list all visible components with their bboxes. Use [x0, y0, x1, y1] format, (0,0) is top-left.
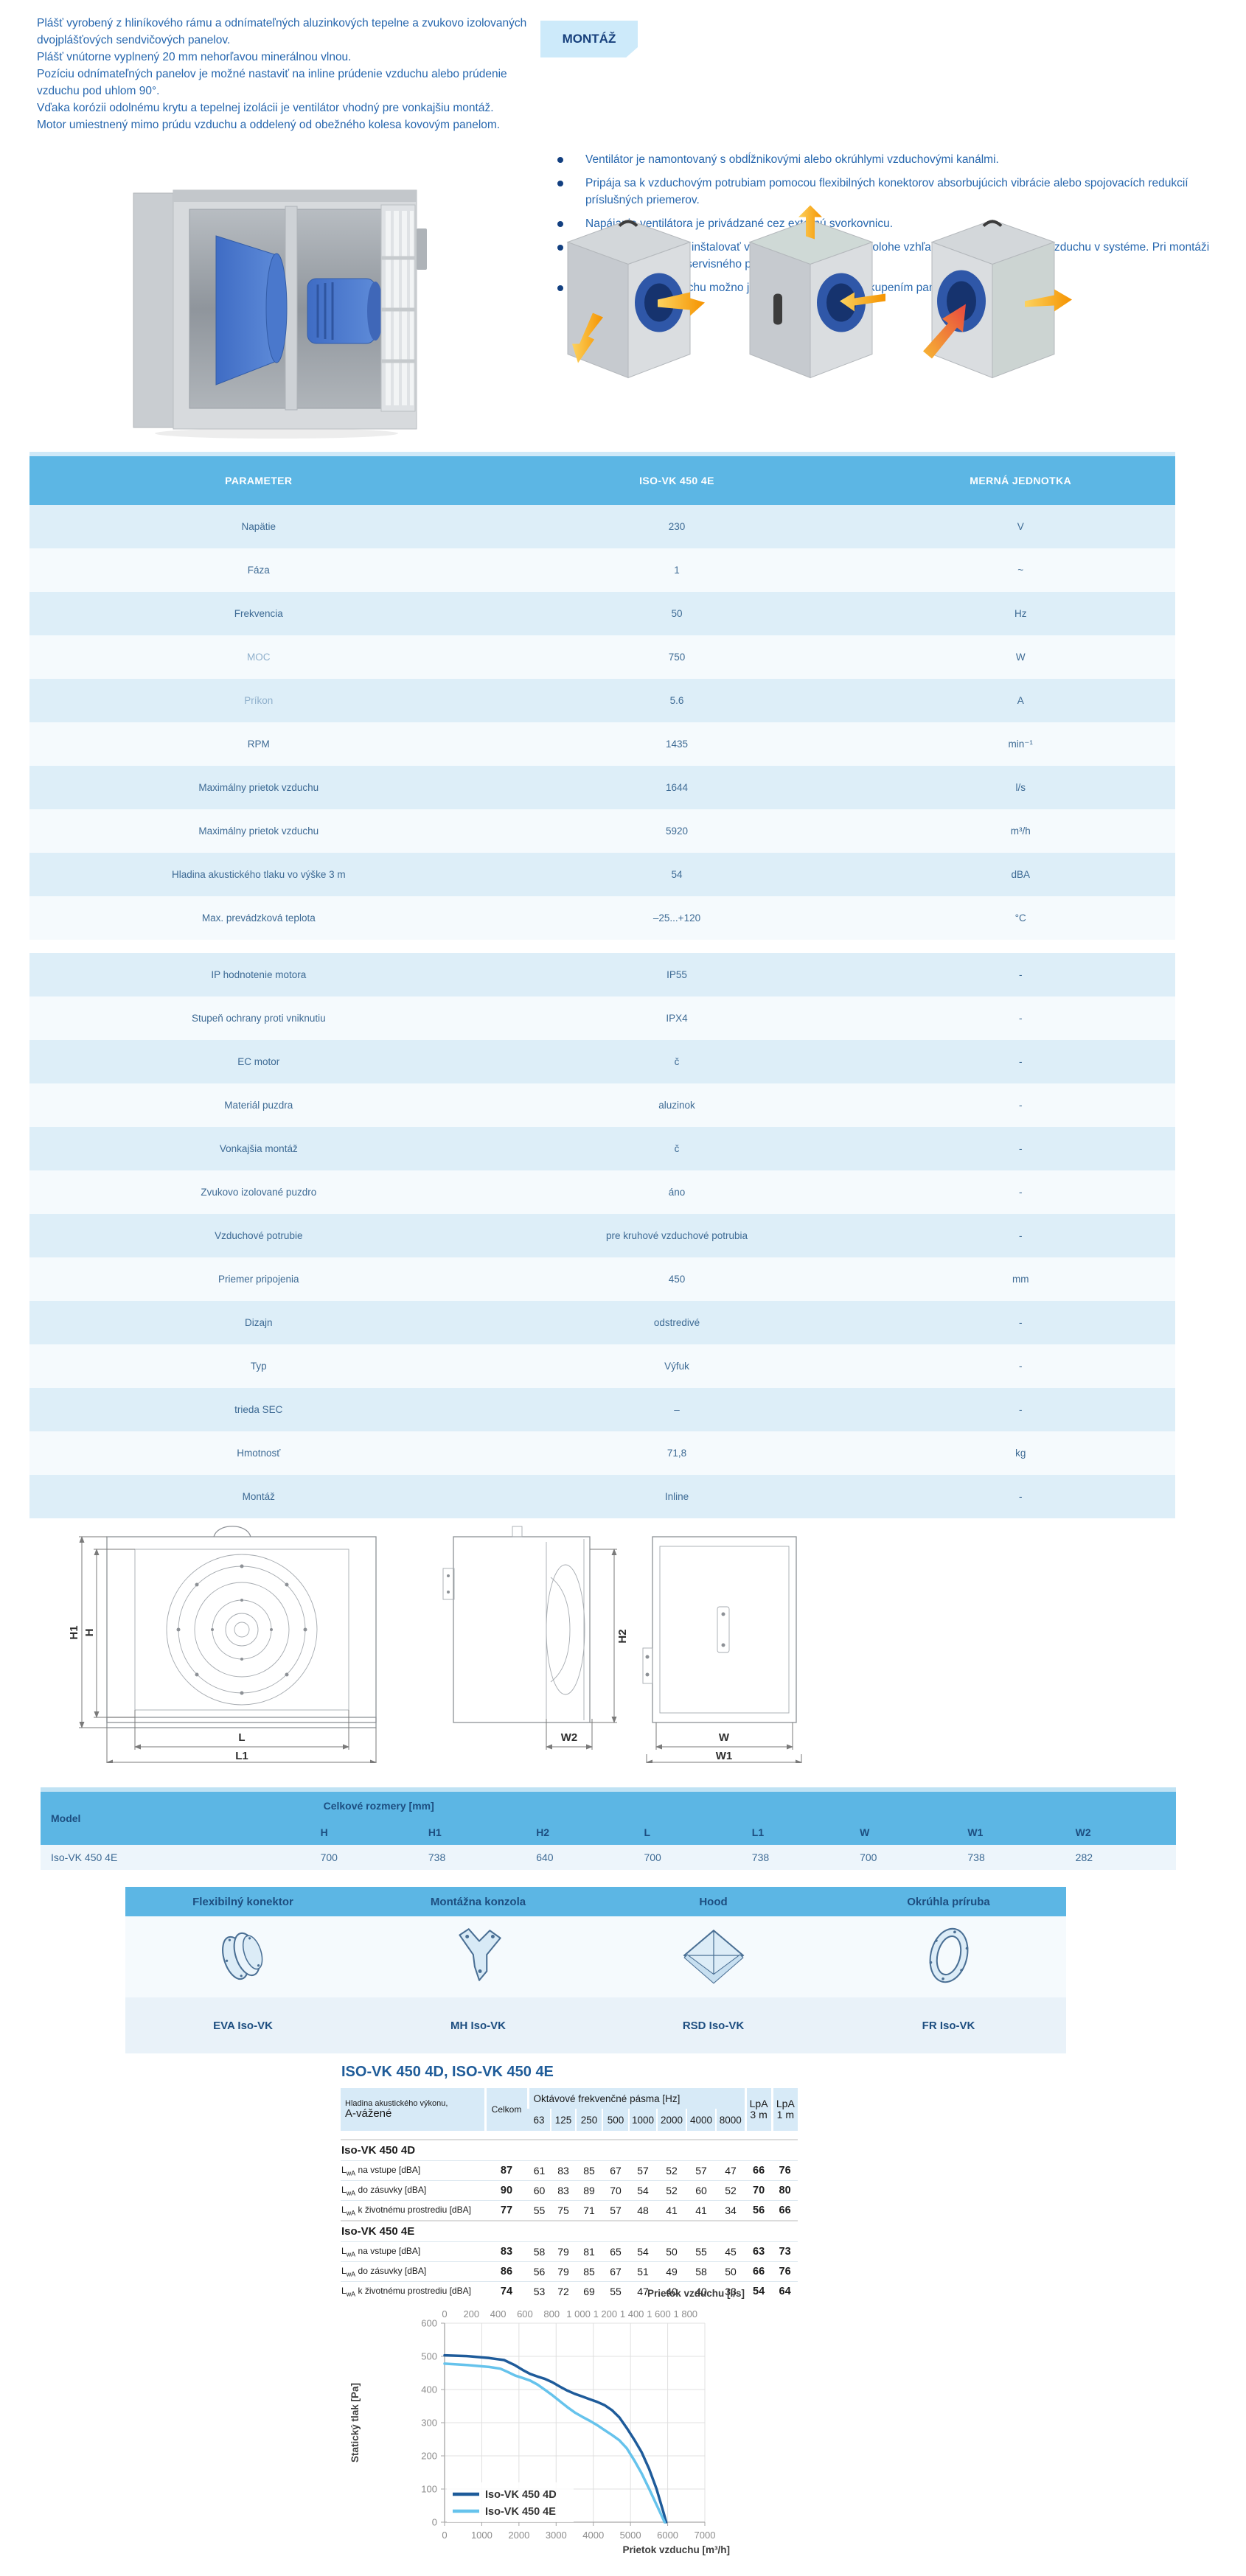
shadow [155, 428, 398, 439]
spec-unit: A [866, 679, 1175, 722]
dims-group-header-row: Model Celkové rozmery [mm] [41, 1790, 1176, 1820]
acoustic-band-value: 57 [686, 2161, 716, 2181]
top-tick-label: 1 400 [620, 2308, 644, 2320]
acoustic-band-value: 41 [686, 2201, 716, 2221]
spec-value: pre kruhové vzduchové potrubia [488, 1214, 866, 1257]
spec-param: Hmotnosť [29, 1431, 488, 1475]
spec-row: Priemer pripojenia450mm [29, 1257, 1175, 1301]
page-break-gap-cell [29, 940, 1175, 953]
acoustic-header-row-1: Hladina akustického výkonu, A-vážené Cel… [341, 2088, 798, 2109]
spec-unit: - [866, 953, 1175, 996]
acoustic-band-value: 67 [602, 2262, 629, 2282]
spec-table: PARAMETER ISO-VK 450 4E MERNÁ JEDNOTKA N… [29, 452, 1175, 1518]
acoustic-band-value: 50 [716, 2262, 745, 2282]
intro-text: Plášť vyrobený z hliníkového rámu a odní… [37, 15, 527, 133]
acoustic-band-value: 58 [528, 2242, 551, 2262]
spec-param: Zvukovo izolované puzdro [29, 1170, 488, 1214]
spec-row: Frekvencia50Hz [29, 592, 1175, 635]
top-tick-label: 400 [490, 2308, 507, 2320]
accessories-icon-row [125, 1916, 1066, 1997]
spec-param: Typ [29, 1344, 488, 1388]
spec-value: 5920 [488, 809, 866, 853]
spec-row: Maximálny prietok vzduchu1644l/s [29, 766, 1175, 809]
acoustic-section-row: Iso-VK 450 4D [341, 2140, 798, 2161]
accessory-code-mh: MH Iso-VK [361, 1997, 596, 2053]
acoustic-label-line2: A-vážené [345, 2107, 391, 2120]
acoustic-section-row: Iso-VK 450 4E [341, 2221, 798, 2242]
dim-label-w2: W2 [561, 1731, 578, 1744]
spec-param: Fáza [29, 548, 488, 592]
acoustic-lpa1-value: 66 [772, 2201, 798, 2221]
accessory-code-rsd: RSD Iso-VK [596, 1997, 831, 2053]
intro-paragraph: Plášť vnútorne vyplnený 20 mm nehorľavou… [37, 49, 527, 66]
spec-param: Napätie [29, 505, 488, 548]
acoustic-band-value: 41 [657, 2201, 686, 2221]
x-tick-label: 7000 [695, 2530, 716, 2541]
spec-unit: min⁻¹ [866, 722, 1175, 766]
impeller-rim [266, 254, 287, 363]
top-tick-label: 1 000 [566, 2308, 591, 2320]
spec-unit: kg [866, 1431, 1175, 1475]
dim-label-h: H [83, 1629, 96, 1637]
acoustic-band-value: 79 [551, 2242, 576, 2262]
front-view-drawing: H1 H L L1 [70, 1526, 376, 1763]
dims-model-header: Model [41, 1790, 313, 1845]
acoustic-band-value: 57 [602, 2201, 629, 2221]
casing-side [133, 193, 175, 427]
top-tick-label: 1 200 [594, 2308, 618, 2320]
spec-param: IP hodnotenie motora [29, 953, 488, 996]
spec-row: TypVýfuk- [29, 1344, 1175, 1388]
accessory-code-eva: EVA Iso-VK [125, 1997, 361, 2053]
dims-val-w1: 738 [960, 1845, 1068, 1870]
spec-param: Hladina akustického tlaku vo výške 3 m [29, 853, 488, 896]
accessories-table: Flexibilný konektor Montážna konzola Hoo… [125, 1887, 1066, 2053]
acoustic-total-value: 77 [485, 2201, 528, 2221]
spec-unit: - [866, 1127, 1175, 1170]
acoustic-total-header: Celkom [485, 2088, 528, 2131]
dims-val-w: 700 [852, 1845, 960, 1870]
dim-label-w: W [719, 1731, 730, 1744]
accessories-header-row: Flexibilný konektor Montážna konzola Hoo… [125, 1887, 1066, 1916]
acoustic-band-value: 75 [551, 2201, 576, 2221]
top-tick-label: 600 [517, 2308, 533, 2320]
spec-value: odstredivé [488, 1301, 866, 1344]
acoustic-band-value: 61 [528, 2161, 551, 2181]
spec-row: Vzduchové potrubiepre kruhové vzduchové … [29, 1214, 1175, 1257]
intro-paragraph: Plášť vyrobený z hliníkového rámu a odní… [37, 15, 527, 49]
acoustic-band-value: 34 [716, 2201, 745, 2221]
variant-side-outlet-image [910, 205, 1076, 389]
spec-unit: ~ [866, 548, 1175, 592]
spec-unit: V [866, 505, 1175, 548]
spec-unit: m³/h [866, 809, 1175, 853]
acoustic-band-value: 58 [686, 2262, 716, 2282]
spec-row: Stupeň ochrany proti vniknutiuIPX4- [29, 996, 1175, 1040]
dim-label-l: L [238, 1731, 245, 1744]
acoustic-row-label: LwA na vstupe [dBA] [341, 2161, 485, 2181]
acoustic-band-value: 55 [528, 2201, 551, 2221]
acoustic-row-label: LwA k životnému prostrediu [dBA] [341, 2201, 485, 2221]
mounting-variant-images [546, 205, 1076, 389]
montaz-bullet: Pripája sa k vzduchovým potrubiam pomoco… [554, 175, 1222, 209]
acoustic-data-row: LwA k životnému prostrediu [dBA]77557571… [341, 2201, 798, 2221]
intro-paragraph: Pozíciu odnímateľných panelov je možné n… [37, 66, 527, 100]
y-tick-label: 300 [421, 2418, 437, 2429]
spec-param: Frekvencia [29, 592, 488, 635]
spec-unit: °C [866, 896, 1175, 940]
acoustic-label-subscript: wA [347, 2250, 356, 2258]
dims-val-l: 700 [636, 1845, 744, 1870]
dims-model: Iso-VK 450 4E [41, 1845, 313, 1870]
spec-unit: mm [866, 1257, 1175, 1301]
top-tick-label: 1 600 [647, 2308, 671, 2320]
page-break-gap [29, 940, 1175, 953]
acoustic-total-value: 86 [485, 2262, 528, 2282]
y-axis-title: Statický tlak [Pa] [349, 2383, 361, 2462]
accessory-code-fr: FR Iso-VK [831, 1997, 1066, 2053]
dims-group-header: Celkové rozmery [mm] [313, 1790, 1176, 1820]
acoustic-lpa1-value: 76 [772, 2161, 798, 2181]
acoustic-band-value: 54 [629, 2181, 657, 2201]
dims-data-row: Iso-VK 450 4E 700 738 640 700 738 700 73… [41, 1845, 1176, 1870]
spec-row: IP hodnotenie motoraIP55- [29, 953, 1175, 996]
acoustic-band-value: 55 [686, 2242, 716, 2262]
spec-value: IPX4 [488, 996, 866, 1040]
acoustic-lpa1-value: 73 [772, 2242, 798, 2262]
acoustic-data-row: LwA do zásuvky [dBA]86567985675149585066… [341, 2262, 798, 2282]
acoustic-band-value: 65 [602, 2242, 629, 2262]
acoustic-band-value: 60 [528, 2181, 551, 2201]
spec-param: EC motor [29, 1040, 488, 1083]
accessory-title-hood: Hood [596, 1887, 831, 1916]
rear-view-drawing: W W1 [643, 1537, 801, 1763]
dims-val-h2: 640 [529, 1845, 636, 1870]
acoustic-band-value: 60 [686, 2181, 716, 2201]
spec-header-parameter: PARAMETER [29, 454, 488, 505]
side-view-drawing: H2 W2 [443, 1526, 629, 1750]
dims-col-h1: H1 [421, 1820, 529, 1845]
dims-col-l: L [636, 1820, 744, 1845]
spec-unit: Hz [866, 592, 1175, 635]
acoustic-row-label: LwA do zásuvky [dBA] [341, 2181, 485, 2201]
acoustic-lpa3-value: 56 [745, 2201, 772, 2221]
acoustic-row-label: LwA do zásuvky [dBA] [341, 2262, 485, 2282]
x-tick-label: 0 [442, 2530, 447, 2541]
dim-label-l1: L1 [235, 1750, 248, 1762]
spec-header-model: ISO-VK 450 4E [488, 454, 866, 505]
spec-unit: - [866, 1344, 1175, 1388]
acoustic-label-subscript: wA [347, 2209, 356, 2216]
hood-icon [680, 1921, 748, 1989]
spec-row: Materiál puzdraaluzinok- [29, 1083, 1175, 1127]
spec-row: EC motorč- [29, 1040, 1175, 1083]
spec-value: 5.6 [488, 679, 866, 722]
acoustic-band-value: 56 [528, 2262, 551, 2282]
acoustic-lpa3-value: 66 [745, 2161, 772, 2181]
spec-row: MOC750W [29, 635, 1175, 679]
y-tick-label: 500 [421, 2351, 437, 2362]
acoustic-band-value: 52 [657, 2181, 686, 2201]
flexible-connector-icon [209, 1921, 277, 1989]
variant-inline-outlet-image [546, 205, 711, 389]
acoustic-band-value: 52 [657, 2161, 686, 2181]
acoustic-lpa3-header: LpA3 m [745, 2088, 772, 2131]
spec-value: IP55 [488, 953, 866, 996]
acoustic-band-value: 54 [629, 2242, 657, 2262]
spec-value: 1 [488, 548, 866, 592]
acoustic-band-value: 85 [576, 2161, 602, 2181]
dimension-drawings: H1 H L L1 H2 W2 W W1 [70, 1504, 815, 1763]
dims-val-w2: 282 [1068, 1845, 1176, 1870]
acoustic-octave-header: Oktávové frekvenčné pásma [Hz] [528, 2088, 745, 2109]
casing-top-rail [173, 190, 417, 202]
acoustic-band-value: 47 [716, 2161, 745, 2181]
x-tick-label: 4000 [582, 2530, 604, 2541]
top-tick-label: 0 [442, 2308, 447, 2320]
acoustic-band-value: 51 [629, 2262, 657, 2282]
acoustic-title: ISO-VK 450 4D, ISO-VK 450 4E [341, 2064, 554, 2081]
spec-value: Výfuk [488, 1344, 866, 1388]
x-tick-label: 3000 [546, 2530, 567, 2541]
acoustic-spacer-row [341, 2131, 798, 2140]
acoustic-lpa1-value: 76 [772, 2262, 798, 2282]
spec-unit: - [866, 1475, 1175, 1518]
acoustic-band-value: 79 [551, 2262, 576, 2282]
x-tick-label: 2000 [508, 2530, 529, 2541]
spec-value: 50 [488, 592, 866, 635]
spec-header-row: PARAMETER ISO-VK 450 4E MERNÁ JEDNOTKA [29, 454, 1175, 505]
acoustic-section-name: Iso-VK 450 4D [341, 2140, 798, 2161]
spec-unit: - [866, 1301, 1175, 1344]
intro-paragraph: Vďaka korózii odolnému krytu a tepelnej … [37, 100, 527, 116]
dim-label-h2: H2 [616, 1629, 629, 1643]
y-tick-label: 400 [421, 2384, 437, 2395]
spec-value: aluzinok [488, 1083, 866, 1127]
handle [773, 294, 782, 325]
spec-unit: dBA [866, 853, 1175, 896]
acoustic-band-value: 89 [576, 2181, 602, 2201]
top-tick-label: 200 [463, 2308, 479, 2320]
spec-param: Materiál puzdra [29, 1083, 488, 1127]
x-tick-label: 5000 [620, 2530, 641, 2541]
bottom-axis-title: Prietok vzduchu [m³/h] [622, 2544, 730, 2555]
acoustic-total-value: 87 [485, 2161, 528, 2181]
spec-value: áno [488, 1170, 866, 1214]
acoustic-row-label: LwA na vstupe [dBA] [341, 2242, 485, 2262]
performance-chart: 0100020003000400050006000700001002003004… [332, 2285, 774, 2572]
acoustic-label-subscript: wA [347, 2189, 356, 2196]
spec-param: Príkon [29, 679, 488, 722]
acoustic-total-value: 83 [485, 2242, 528, 2262]
spec-param: Vzduchové potrubie [29, 1214, 488, 1257]
acoustic-band-value: 70 [602, 2181, 629, 2201]
accessory-title-flexible-connector: Flexibilný konektor [125, 1887, 361, 1916]
spec-param: Priemer pripojenia [29, 1257, 488, 1301]
spec-row: Zvukovo izolované puzdroáno- [29, 1170, 1175, 1214]
top-tick-label: 1 800 [674, 2308, 698, 2320]
top-tick-label: 800 [543, 2308, 560, 2320]
acoustic-spacer-cell [341, 2131, 798, 2140]
acoustic-band-value: 71 [576, 2201, 602, 2221]
acoustic-band-value: 83 [551, 2181, 576, 2201]
acoustic-band-value: 48 [629, 2201, 657, 2221]
spec-value: – [488, 1388, 866, 1431]
legend-label: Iso-VK 450 4E [485, 2506, 556, 2518]
acoustic-lpa1-header: LpA1 m [772, 2088, 798, 2131]
acoustic-table: Hladina akustického výkonu, A-vážené Cel… [341, 2088, 798, 2301]
accessories-name-row: EVA Iso-VK MH Iso-VK RSD Iso-VK FR Iso-V… [125, 1997, 1066, 2053]
acoustic-label-subscript: wA [347, 2270, 356, 2277]
dims-col-l1: L1 [745, 1820, 852, 1845]
acoustic-label-subscript: wA [347, 2169, 356, 2177]
montaz-badge: MONTÁŽ [540, 21, 638, 57]
accessory-title-round-flange: Okrúhla príruba [831, 1887, 1066, 1916]
acoustic-band-value: 49 [657, 2262, 686, 2282]
acoustic-total-value: 90 [485, 2181, 528, 2201]
spec-value: –25...+120 [488, 896, 866, 940]
y-tick-label: 200 [421, 2451, 437, 2462]
acoustic-band-value: 50 [657, 2242, 686, 2262]
spec-unit: - [866, 1083, 1175, 1127]
spec-value: 71,8 [488, 1431, 866, 1475]
acoustic-label-header: Hladina akustického výkonu, A-vážené [341, 2088, 485, 2131]
dim-label-w1: W1 [716, 1750, 733, 1762]
dims-col-h2: H2 [529, 1820, 636, 1845]
spec-row: trieda SEC–- [29, 1388, 1175, 1431]
acoustic-band-value: 52 [716, 2181, 745, 2201]
y-tick-label: 0 [432, 2517, 437, 2528]
junction-box [417, 228, 427, 270]
acoustic-lpa3-value: 66 [745, 2262, 772, 2282]
acoustic-data-row: LwA na vstupe [dBA]835879816554505545637… [341, 2242, 798, 2262]
spec-row: RPM1435min⁻¹ [29, 722, 1175, 766]
acoustic-lpa3-value: 70 [745, 2181, 772, 2201]
dims-col-w2: W2 [1068, 1820, 1176, 1845]
dims-val-h1: 738 [421, 1845, 529, 1870]
spec-unit: - [866, 1170, 1175, 1214]
spec-value: 1644 [488, 766, 866, 809]
performance-chart-svg: 0100020003000400050006000700001002003004… [332, 2285, 774, 2572]
fan-cutaway-image [122, 184, 431, 441]
acoustic-lpa1-value: 80 [772, 2181, 798, 2201]
spec-value: č [488, 1040, 866, 1083]
mounting-bracket-icon [445, 1921, 512, 1989]
dims-col-h: H [313, 1820, 421, 1845]
spec-value: 1435 [488, 722, 866, 766]
intro-paragraph: Motor umiestnený mimo prúdu vzduchu a od… [37, 116, 527, 133]
dimensions-table: Model Celkové rozmery [mm] H H1 H2 L L1 … [41, 1787, 1176, 1870]
spec-row: Hmotnosť71,8kg [29, 1431, 1175, 1475]
round-flange-icon [915, 1921, 983, 1989]
x-tick-label: 1000 [471, 2530, 493, 2541]
spec-param: Dizajn [29, 1301, 488, 1344]
spec-row: Fáza1~ [29, 548, 1175, 592]
dims-col-w: W [852, 1820, 960, 1845]
montaz-bullet: Ventilátor je namontovaný s obdĺžnikovým… [554, 151, 1222, 168]
acoustic-band-value: 45 [716, 2242, 745, 2262]
spec-unit: l/s [866, 766, 1175, 809]
top-axis-title: Prietok vzduchu [l/s] [647, 2288, 745, 2299]
spec-param: Vonkajšia montáž [29, 1127, 488, 1170]
y-tick-label: 600 [421, 2318, 437, 2329]
spec-param: trieda SEC [29, 1388, 488, 1431]
dims-val-l1: 738 [745, 1845, 852, 1870]
accessory-title-mounting-bracket: Montážna konzola [361, 1887, 596, 1916]
acoustic-lpa1-value: 64 [772, 2282, 798, 2302]
acoustic-section-name: Iso-VK 450 4E [341, 2221, 798, 2242]
spec-unit: - [866, 1040, 1175, 1083]
spec-value: č [488, 1127, 866, 1170]
spec-param: Maximálny prietok vzduchu [29, 766, 488, 809]
acoustic-data-row: LwA do zásuvky [dBA]90608389705452605270… [341, 2181, 798, 2201]
acoustic-band-value: 57 [629, 2161, 657, 2181]
spec-unit: - [866, 1214, 1175, 1257]
spec-row: Príkon5.6A [29, 679, 1175, 722]
spec-value: 230 [488, 505, 866, 548]
spec-param: Stupeň ochrany proti vniknutiu [29, 996, 488, 1040]
spec-param: RPM [29, 722, 488, 766]
spec-unit: W [866, 635, 1175, 679]
spec-header-unit: MERNÁ JEDNOTKA [866, 454, 1175, 505]
acoustic-band-value: 85 [576, 2262, 602, 2282]
spec-row: Vonkajšia montážč- [29, 1127, 1175, 1170]
spec-row: Dizajnodstredivé- [29, 1301, 1175, 1344]
acoustic-band-value: 67 [602, 2161, 629, 2181]
acoustic-band-value: 83 [551, 2161, 576, 2181]
spec-unit: - [866, 1388, 1175, 1431]
acoustic-lpa3-value: 63 [745, 2242, 772, 2262]
y-tick-label: 100 [421, 2484, 437, 2495]
x-tick-label: 6000 [657, 2530, 678, 2541]
acoustic-band-value: 81 [576, 2242, 602, 2262]
dims-val-h: 700 [313, 1845, 421, 1870]
spec-param: Max. prevádzková teplota [29, 896, 488, 940]
spec-unit: - [866, 996, 1175, 1040]
spec-value: 450 [488, 1257, 866, 1301]
spec-row: Napätie230V [29, 505, 1175, 548]
spec-row: Max. prevádzková teplota–25...+120°C [29, 896, 1175, 940]
spec-row: Maximálny prietok vzduchu5920m³/h [29, 809, 1175, 853]
spec-row: Hladina akustického tlaku vo výške 3 m54… [29, 853, 1175, 896]
spec-param: Maximálny prietok vzduchu [29, 809, 488, 853]
dim-label-h1: H1 [70, 1625, 80, 1639]
spec-value: 54 [488, 853, 866, 896]
dims-col-w1: W1 [960, 1820, 1068, 1845]
legend-label: Iso-VK 450 4D [485, 2489, 557, 2501]
spec-value: 750 [488, 635, 866, 679]
spec-param: MOC [29, 635, 488, 679]
acoustic-data-row: LwA na vstupe [dBA]876183856757525747667… [341, 2161, 798, 2181]
variant-top-outlet-image [728, 205, 894, 389]
